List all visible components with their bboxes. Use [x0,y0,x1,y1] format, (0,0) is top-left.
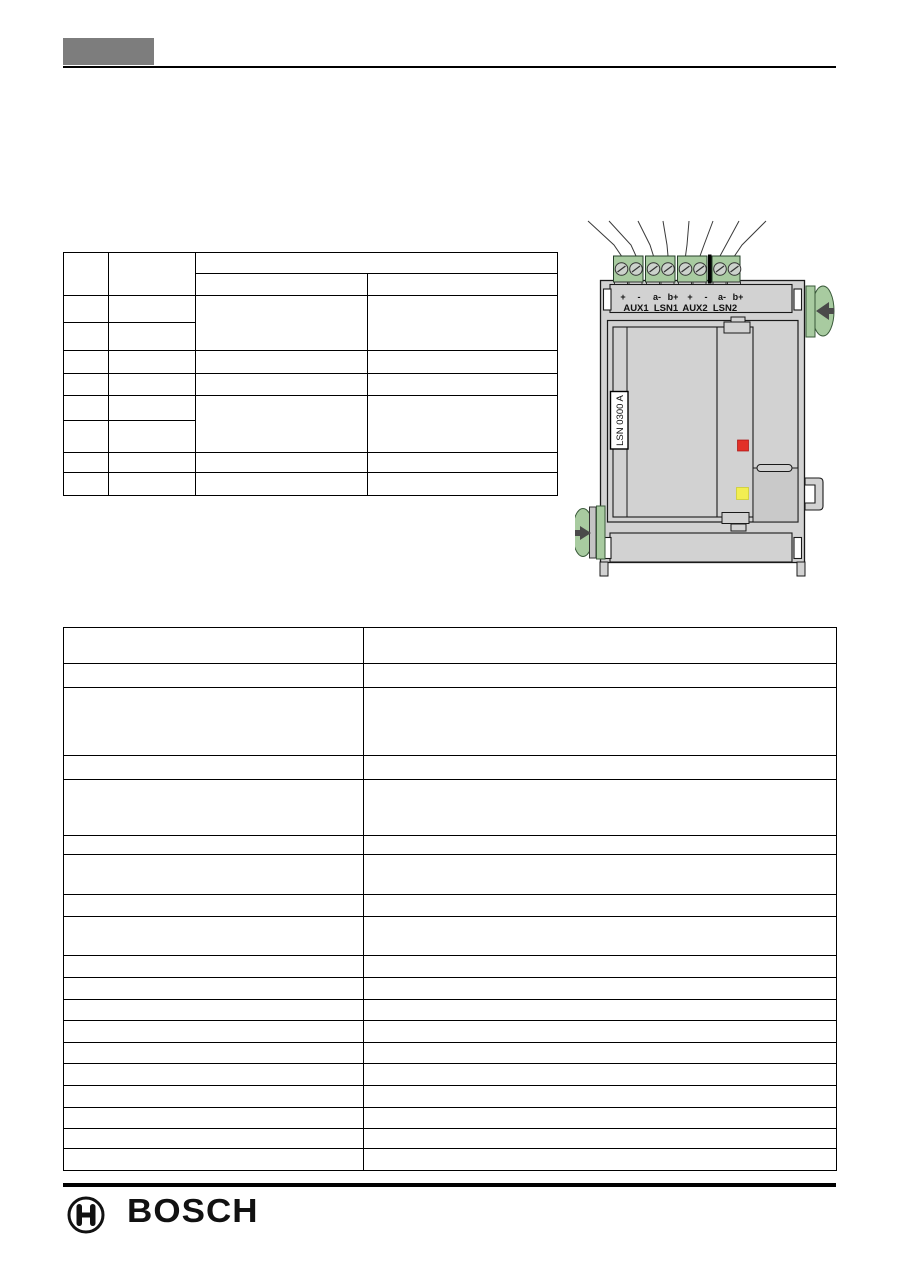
spec-table-cell [64,1064,364,1086]
terminal-table-cell [196,253,558,274]
spec-table-cell [64,895,364,917]
spec-table-cell [364,1108,837,1129]
din-clip-top [806,286,834,337]
spec-table-row [64,756,837,780]
sign-label: + [620,292,625,302]
footer-rule [63,1183,836,1187]
spec-table-cell [64,917,364,956]
spec-table-cell [64,855,364,895]
spec-table-row [64,1043,837,1064]
terminal-table-cell [368,274,558,296]
spec-table-cell [64,1108,364,1129]
spec-table-row [64,855,837,895]
model-label: LSN 0300 A [615,394,626,445]
terminal-table-cell [196,351,368,374]
bosch-armature-icon [64,1193,108,1237]
spec-table-row [64,917,837,956]
spec-table-row [64,895,837,917]
spec-table-cell [64,1021,364,1043]
terminal-table-cell [109,374,196,396]
spec-table-row [64,664,837,688]
terminal-table-cell [368,351,558,374]
terminal-table-cell [64,253,109,296]
terminal-table-cell [109,421,196,453]
spec-table-row [64,1000,837,1021]
terminal-table-cell [109,453,196,473]
spec-table-cell [364,628,837,664]
spec-table-cell [364,956,837,978]
spec-table-cell [364,917,837,956]
sign-label: a- [653,292,661,302]
sign-label: b+ [668,292,679,302]
terminal-table-cell [368,374,558,396]
terminal-table-cell [368,453,558,473]
terminal-table-cell [64,323,109,351]
side-panel [753,468,798,522]
terminal-table-cell [368,396,558,453]
spec-table-cell [64,956,364,978]
terminal-table-cell [109,351,196,374]
terminal-table-cell [368,296,558,351]
spec-table-row [64,836,837,855]
spec-table-cell [64,836,364,855]
spec-table-cell [64,780,364,836]
spec-table-row [64,1108,837,1129]
terminal-table-cell [64,453,109,473]
terminal-assignment-table [63,252,558,496]
spec-table-cell [364,688,837,756]
din-clip-bottom [575,506,605,559]
header-rule [63,66,836,68]
spec-table-cell [64,1086,364,1108]
terminal-table-cell [196,473,368,496]
bosch-logo: BOSCH [64,1193,251,1237]
terminal-table-cell [196,296,368,351]
bosch-wordmark: BOSCH [127,1193,259,1229]
terminal-table-cell [196,374,368,396]
spec-table-cell [364,1129,837,1149]
terminal-table-cell [64,473,109,496]
spec-table-row [64,628,837,664]
terminal-table-cell [196,396,368,453]
spec-table-cell [64,664,364,688]
mounting-feet [600,562,805,576]
terminal-table-cell [196,274,368,296]
spec-table-cell [64,688,364,756]
spec-table-row [64,1149,837,1171]
terminal-table-cell [196,453,368,473]
sign-label: - [705,292,708,302]
spec-table-cell [364,756,837,780]
terminal-name: AUX2 [682,303,707,314]
spec-table-cell [364,855,837,895]
panel-slot [757,465,792,472]
sign-label: - [638,292,641,302]
terminal-table-cell [64,351,109,374]
sign-label: + [687,292,692,302]
terminal-table-cell [64,396,109,421]
spec-table-cell [364,895,837,917]
terminal-table-cell [109,473,196,496]
terminal-table-body [64,253,558,496]
red-led [738,440,749,451]
spec-table-row [64,978,837,1000]
spec-table-cell [364,1043,837,1064]
specifications-table [63,627,837,1171]
spec-table-row [64,956,837,978]
datasheet-page: + - a- b+ + - a- b+ AUX1 LSN1 AUX2 LSN2 [0,0,900,1273]
spec-table-row [64,688,837,756]
spec-table-cell [364,978,837,1000]
terminal-table-cell [64,296,109,323]
terminal-table-cell [109,396,196,421]
sign-label: b+ [733,292,744,302]
spec-table-row [64,1086,837,1108]
spec-table-cell [64,628,364,664]
module-diagram: + - a- b+ + - a- b+ AUX1 LSN1 AUX2 LSN2 [575,205,850,580]
spec-table-cell [364,1000,837,1021]
yellow-led [737,488,749,500]
terminal-table-cell [64,374,109,396]
spec-table-cell [64,1149,364,1171]
spec-table-cell [64,1043,364,1064]
spec-table-body [64,628,837,1171]
terminal-table-cell [368,473,558,496]
bottom-strip [610,533,792,562]
terminal-table-cell [109,323,196,351]
spec-table-cell [64,1000,364,1021]
terminal-table-cell [109,296,196,323]
spec-table-cell [64,978,364,1000]
terminal-table-cell [64,421,109,453]
terminal-table-cell [109,253,196,296]
module-insert [613,327,753,517]
block-divider [708,255,712,284]
spec-table-cell [64,756,364,780]
sign-label: a- [718,292,726,302]
spec-table-cell [364,1149,837,1171]
spec-table-cell [364,1021,837,1043]
spec-table-row [64,1021,837,1043]
spec-table-cell [364,664,837,688]
spec-table-row [64,1064,837,1086]
leader-lines [588,221,766,256]
header-tag-box [63,38,154,65]
terminal-name: AUX1 [623,303,649,314]
spec-table-row [64,1129,837,1149]
spec-table-cell [64,1129,364,1149]
spec-table-cell [364,836,837,855]
din-hook [805,478,823,510]
spec-table-row [64,780,837,836]
spec-table-cell [364,780,837,836]
spec-table-cell [364,1086,837,1108]
spec-table-cell [364,1064,837,1086]
